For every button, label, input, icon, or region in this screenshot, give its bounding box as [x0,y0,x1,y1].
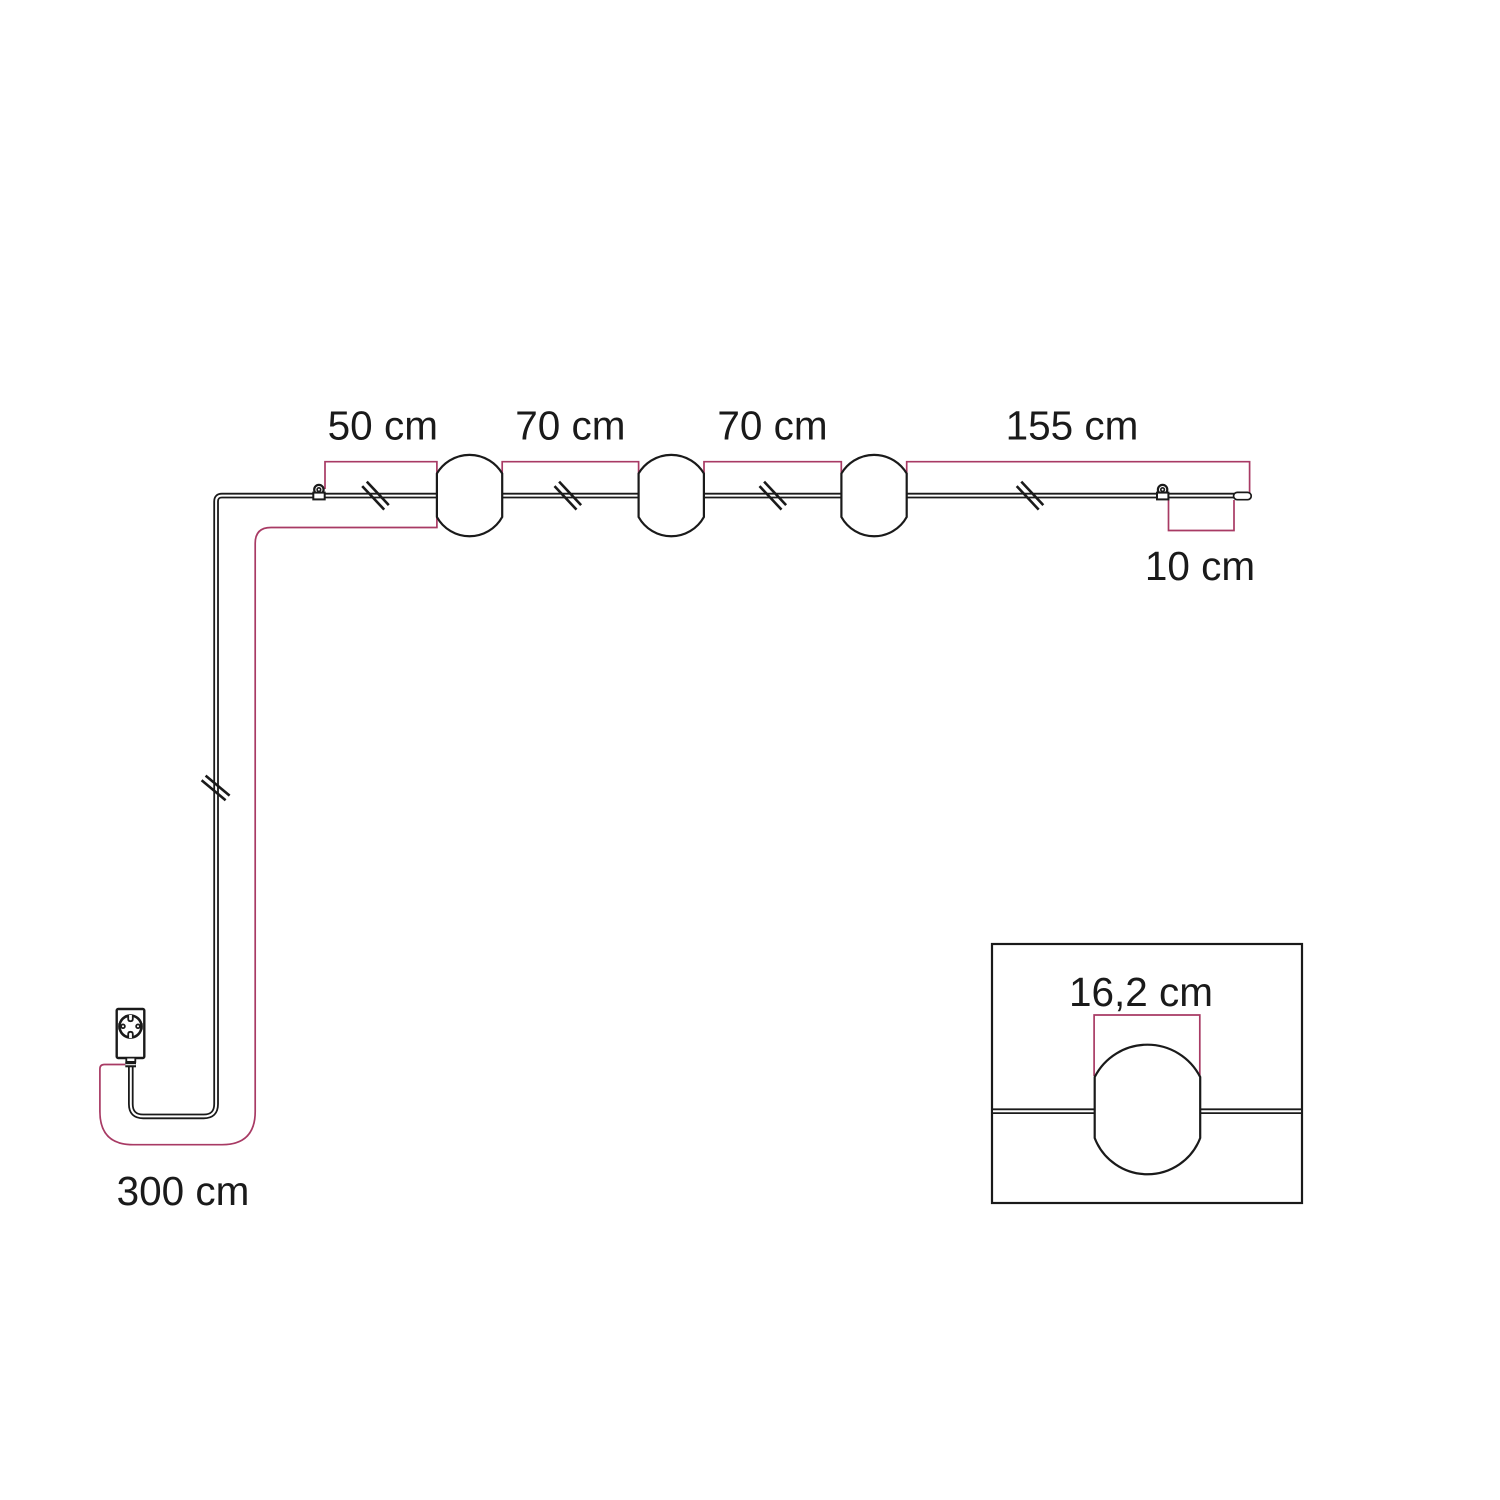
svg-text:300 cm: 300 cm [117,1168,250,1214]
svg-text:70 cm: 70 cm [515,402,625,448]
svg-text:70 cm: 70 cm [717,402,827,448]
svg-text:50 cm: 50 cm [328,402,438,448]
svg-text:155 cm: 155 cm [1006,402,1139,448]
svg-text:16,2 cm: 16,2 cm [1069,969,1213,1015]
svg-text:10 cm: 10 cm [1145,543,1255,589]
